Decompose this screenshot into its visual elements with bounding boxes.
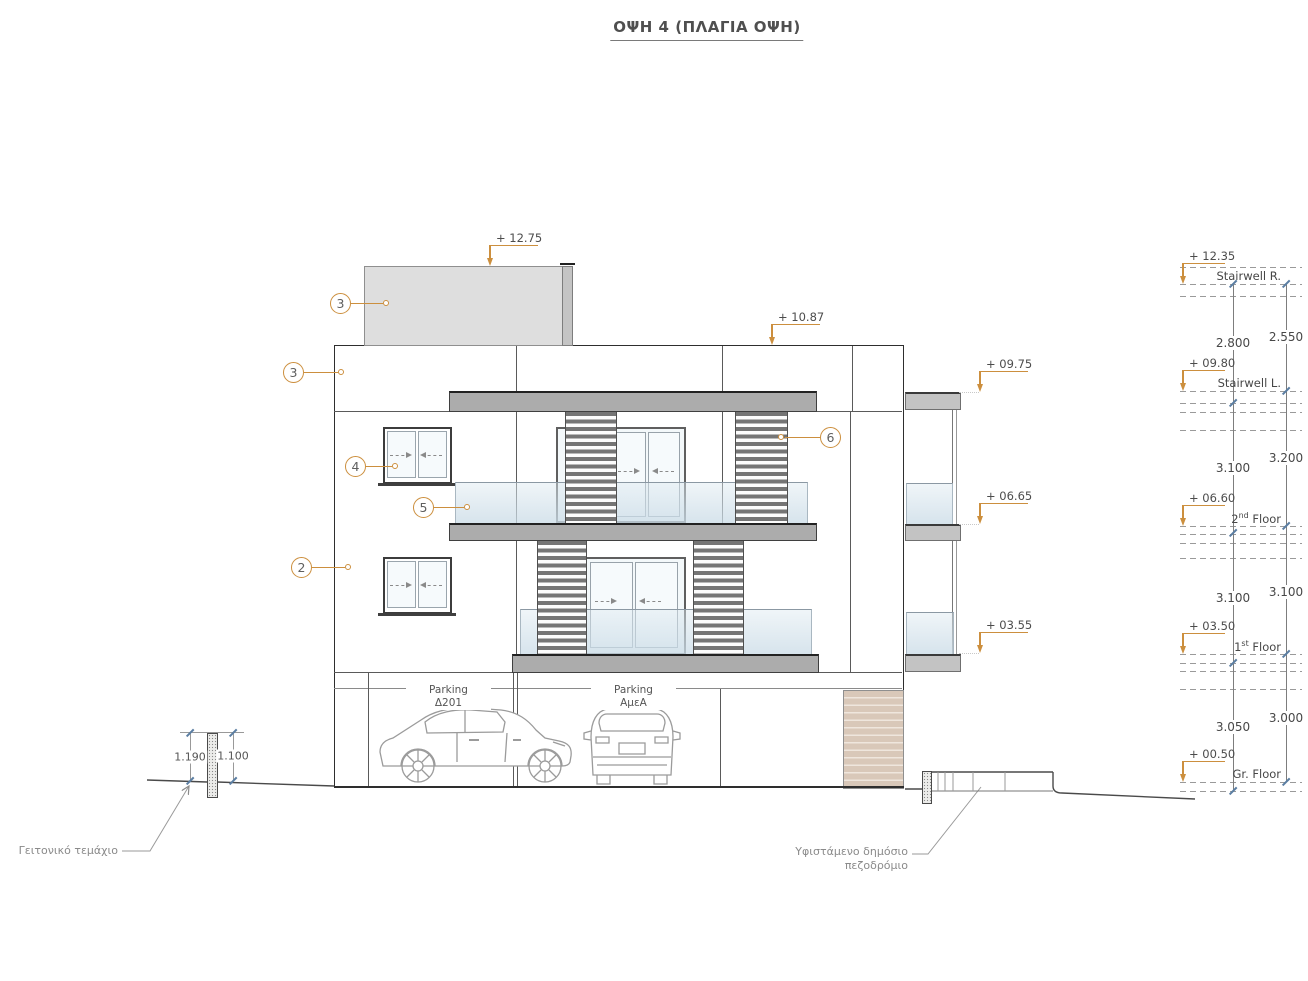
- opening-arrow-icon: [654, 471, 674, 472]
- dim-value: 3.100: [1267, 585, 1305, 599]
- gf-column: [720, 689, 721, 787]
- dim-value: 2.550: [1267, 330, 1305, 344]
- dim-value: 3.200: [1267, 451, 1305, 465]
- level-dash-line: [1180, 663, 1302, 664]
- louver-shutter: [735, 411, 788, 525]
- opening-arrow-icon: [390, 585, 410, 586]
- callout-dot: [345, 564, 351, 570]
- louver-shutter: [565, 411, 617, 525]
- ground-line-left: [147, 780, 334, 786]
- sidewalk-joints: [938, 772, 1005, 791]
- opening-arrow-icon: [422, 455, 442, 456]
- window-sill: [378, 483, 456, 486]
- callout-dot: [778, 434, 784, 440]
- elevation-drawing: ΟΨΗ 4 (ΠΛΑΓΙΑ ΟΨΗ): [0, 0, 1308, 981]
- leader-neighbor: [122, 786, 189, 851]
- callout-stairwell: 3: [330, 293, 351, 314]
- wall-joint: [516, 541, 517, 655]
- stairwell-roof-box: [364, 266, 563, 346]
- callout-dot: [338, 369, 344, 375]
- floor-label-stairwell-l: Stairwell L.: [1218, 376, 1281, 390]
- dim-tick: [186, 777, 194, 785]
- window-sill: [378, 613, 456, 616]
- wall-dim-value-left: 1.190: [173, 751, 207, 764]
- callout-dot: [392, 463, 398, 469]
- level-dash-line: [1180, 267, 1302, 268]
- dim-value: 3.100: [1214, 461, 1252, 475]
- opening-arrow-icon: [422, 585, 442, 586]
- level-dash-line: [1180, 689, 1302, 690]
- louver-shutter: [537, 540, 587, 656]
- balcony-slab-2f: [449, 523, 817, 541]
- side-balcony-slab-2f: [905, 524, 961, 541]
- garage-cladding: [843, 690, 904, 789]
- glass-railing-2f-side: [906, 483, 953, 525]
- marker-guide-line: [959, 653, 979, 654]
- canopy-slab: [449, 391, 817, 412]
- callout-louver: 6: [820, 427, 841, 448]
- side-balcony-slab-1f: [905, 654, 961, 672]
- glass-railing-1f-side: [906, 612, 954, 655]
- dim-value: 3.000: [1267, 711, 1305, 725]
- retaining-wall: [207, 733, 218, 798]
- level-dash-line: [1180, 534, 1302, 535]
- gf-column: [368, 673, 369, 787]
- floor-label-1st: 1st Floor: [1234, 639, 1281, 654]
- level-dash-line: [1180, 412, 1302, 413]
- dim-value: 2.800: [1214, 336, 1252, 350]
- parking-label-d201: Parking Δ201: [406, 684, 491, 710]
- car-side-icon: [373, 700, 575, 792]
- callout-leader: [434, 507, 464, 508]
- floor-label-ground: Gr. Floor: [1232, 767, 1281, 781]
- callout-leader: [366, 466, 392, 467]
- callout-railing: 5: [413, 497, 434, 518]
- louver-shutter: [693, 540, 744, 656]
- dim-value: 3.050: [1214, 720, 1252, 734]
- stairwell-roof-strip: [562, 266, 573, 346]
- opening-arrow-icon: [390, 455, 410, 456]
- callout-wall: 2: [291, 557, 312, 578]
- dim-value: 3.100: [1214, 591, 1252, 605]
- level-dash-line: [1180, 558, 1302, 559]
- drawing-title: ΟΨΗ 4 (ΠΛΑΓΙΑ ΟΨΗ): [610, 18, 803, 41]
- callout-window: 4: [345, 456, 366, 477]
- level-dash-line: [1180, 791, 1302, 792]
- rear-wall-edge: [850, 411, 851, 672]
- floor-label-stairwell-r: Stairwell R.: [1216, 269, 1281, 283]
- callout-dot: [464, 504, 470, 510]
- sidewalk-label: Υφιστάμενο δημόσιο πεζοδρόμιο: [772, 845, 908, 873]
- callout-leader: [351, 303, 383, 304]
- dim-tick: [229, 777, 237, 785]
- callout-parapet: 3: [283, 362, 304, 383]
- window-2f: [383, 427, 452, 484]
- level-dash-line: [1180, 296, 1302, 297]
- callout-leader: [312, 567, 345, 568]
- callout-leader: [785, 437, 820, 438]
- marker-guide-line: [959, 392, 979, 393]
- opening-arrow-icon: [618, 471, 638, 472]
- level-dash-line: [1180, 543, 1302, 544]
- wall-dim-value-right: 1.100: [216, 750, 250, 763]
- level-dash-line: [1180, 430, 1302, 431]
- balcony-column: [956, 410, 957, 672]
- sidewalk-curb-post: [922, 771, 932, 804]
- level-dash-line: [1180, 403, 1302, 404]
- stairwell-roof-edge: [560, 263, 575, 265]
- callout-dot: [383, 300, 389, 306]
- parking-label-amea: Parking ΑμεΑ: [591, 684, 676, 710]
- window-1f: [383, 557, 452, 614]
- neighbor-plot-label: Γειτονικό τεμάχιο: [18, 844, 118, 858]
- balcony-slab-1f: [512, 654, 819, 673]
- level-dash-line: [1180, 671, 1302, 672]
- opening-arrow-icon: [641, 601, 661, 602]
- parapet-joint: [852, 346, 853, 411]
- curb-street-line: [1053, 772, 1195, 799]
- floor-label-2nd: 2nd Floor: [1231, 511, 1281, 526]
- callout-leader: [304, 372, 338, 373]
- marker-guide-line: [959, 524, 979, 525]
- dim-line-right: [1286, 284, 1287, 782]
- side-balcony-slab-top: [905, 392, 961, 410]
- opening-arrow-icon: [595, 601, 615, 602]
